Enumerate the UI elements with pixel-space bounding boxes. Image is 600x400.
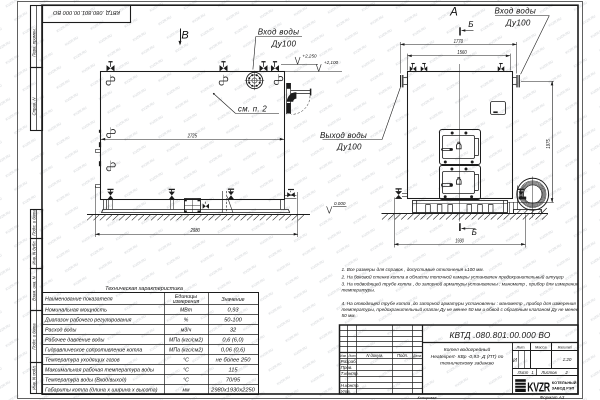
svg-text:МПа (кгс/см2): МПа (кгс/см2) <box>169 347 203 353</box>
svg-text:Диапазон рабочего регулировани: Диапазон рабочего регулирования <box>44 317 132 323</box>
svg-text:Техническая характеристика: Техническая характеристика <box>105 286 183 292</box>
svg-text:KVZR: KVZR <box>527 379 550 394</box>
svg-text:0,6 (6,0): 0,6 (6,0) <box>222 338 243 344</box>
svg-text:Расход воды: Расход воды <box>45 327 76 333</box>
svg-text:техническому заданию: техническому заданию <box>440 360 494 366</box>
svg-text:Выход воды: Выход воды <box>320 131 367 140</box>
svg-text:Подп.: Подп. <box>397 353 408 358</box>
svg-text:Heatexpert- КВр -0,93- Д (ПТ): Heatexpert- КВр -0,93- Д (ПТ) по <box>431 354 504 360</box>
svg-text:%: % <box>184 317 189 323</box>
svg-text:Значение: Значение <box>221 297 244 303</box>
svg-text:Подп. и дата: Подп. и дата <box>31 209 36 236</box>
svg-text:Подп. и дата: Подп. и дата <box>31 323 36 350</box>
svg-text:50-100: 50-100 <box>224 318 243 324</box>
svg-text:+2,250: +2,250 <box>302 54 317 59</box>
svg-text:0,06 (0,6): 0,06 (0,6) <box>221 348 245 354</box>
svg-text:Ду100: Ду100 <box>336 142 362 151</box>
svg-text:70/95: 70/95 <box>226 378 241 384</box>
svg-text:2980х1930х2250: 2980х1930х2250 <box>210 388 255 394</box>
svg-text:температуры, предохранительный: температуры, предохранительный клапан Ду… <box>342 306 579 312</box>
svg-text:Вход воды: Вход воды <box>495 6 537 15</box>
svg-text:N докум.: N докум. <box>366 353 383 358</box>
svg-text:КОТЕЛЬНЫЙ: КОТЕЛЬНЫЙ <box>552 381 577 385</box>
svg-text:Дата: Дата <box>413 353 422 358</box>
svg-text:КВТД .080.801.00.000 ВО: КВТД .080.801.00.000 ВО <box>450 330 551 340</box>
svg-text:°С: °С <box>183 377 189 383</box>
svg-text:Перв. примен.: Перв. примен. <box>31 28 36 57</box>
svg-text:ЗАВОД РЭП: ЗАВОД РЭП <box>552 387 575 391</box>
svg-text:0.000: 0.000 <box>334 201 346 206</box>
svg-text:И: И <box>513 358 517 364</box>
svg-text:Ду100: Ду100 <box>505 18 531 27</box>
svg-text:Вход воды: Вход воды <box>258 28 300 37</box>
svg-text:1. Все размеры для справок ,: 1. Все размеры для справок , допустимые … <box>342 267 484 272</box>
svg-text:Инв. N дубл.: Инв. N дубл. <box>31 240 36 264</box>
svg-text:Максимальная рабочая температу: Максимальная рабочая температура воды <box>45 367 154 373</box>
svg-text:МПа (кгс/см2): МПа (кгс/см2) <box>169 337 203 343</box>
svg-text:Б: Б <box>472 228 477 237</box>
svg-text:м3/ч: м3/ч <box>181 327 192 333</box>
svg-text:измерения: измерения <box>173 299 200 305</box>
svg-text:Лист: Лист <box>517 370 529 375</box>
svg-text:Формат А3: Формат А3 <box>540 395 565 400</box>
svg-text:Утв.: Утв. <box>341 389 351 394</box>
svg-text:1560: 1560 <box>457 50 466 56</box>
svg-text:Ду100: Ду100 <box>271 39 297 48</box>
svg-text:Инв. N подл.: Инв. N подл. <box>31 365 36 389</box>
svg-text:Номинальная мощность: Номинальная мощность <box>45 307 107 313</box>
svg-text:КВТД .080.801.00.000 ВО: КВТД .080.801.00.000 ВО <box>53 9 120 15</box>
svg-text:Справ. N: Справ. N <box>31 97 36 116</box>
svg-text:Температура уходящих газов: Температура уходящих газов <box>45 357 120 363</box>
svg-text:2725: 2725 <box>187 133 198 139</box>
svg-text:Копировал: Копировал <box>418 396 438 400</box>
svg-text:МВт: МВт <box>180 307 193 313</box>
svg-text:1:20: 1:20 <box>563 357 572 362</box>
svg-text:2. На боковой стенке котла в: 2. На боковой стенке котла в области топ… <box>341 273 564 279</box>
svg-text:Листов: Листов <box>540 370 557 375</box>
svg-text:Разраб.: Разраб. <box>341 359 357 364</box>
svg-text:Масштаб: Масштаб <box>558 345 573 350</box>
svg-text:Взам. инв. N: Взам. инв. N <box>31 275 36 300</box>
svg-text:Пров.: Пров. <box>341 365 353 370</box>
svg-text:Гидравлическое сопротивление к: Гидравлическое сопротивление котла <box>45 347 142 353</box>
svg-text:32: 32 <box>230 328 237 334</box>
svg-text:115: 115 <box>228 368 238 374</box>
svg-text:мм: мм <box>182 387 190 393</box>
svg-text:1: 1 <box>531 370 533 375</box>
svg-text:Т.контр.: Т.контр. <box>341 371 359 376</box>
svg-text:Котел водогрейный: Котел водогрейный <box>444 346 491 353</box>
svg-text:1770: 1770 <box>454 39 463 45</box>
svg-text:°С: °С <box>183 367 189 373</box>
svg-text:+2,100: +2,100 <box>324 60 339 65</box>
svg-text:0,93: 0,93 <box>227 308 239 314</box>
svg-text:Масса: Масса <box>535 345 547 350</box>
svg-text:1930: 1930 <box>455 239 464 245</box>
svg-text:Наименование показателя: Наименование показателя <box>45 296 113 302</box>
svg-text:2980: 2980 <box>190 228 200 234</box>
svg-text:Лист: Лист <box>348 353 357 358</box>
svg-text:°С: °С <box>183 357 189 363</box>
svg-text:3. На подводящей трубе котла: 3. На подводящей трубе котла , до запорн… <box>342 280 579 286</box>
svg-text:4. На отводящей трубе котла ,: 4. На отводящей трубе котла ,до запорной… <box>342 300 577 306</box>
svg-text:Изм.: Изм. <box>340 353 347 358</box>
svg-text:1975: 1975 <box>546 139 552 148</box>
svg-text:Лит.: Лит. <box>515 345 525 350</box>
svg-text:Температура воды (Вход/выход): Температура воды (Вход/выход) <box>45 377 127 383</box>
svg-text:не более 250: не более 250 <box>216 358 252 364</box>
svg-text:Б: Б <box>468 20 473 29</box>
svg-text:50 мм.: 50 мм. <box>342 313 356 318</box>
svg-text:см. п. 2: см. п. 2 <box>238 105 267 114</box>
svg-text:Н.контр.: Н.контр. <box>341 383 360 388</box>
svg-text:температуры.: температуры. <box>342 288 376 293</box>
svg-text:В: В <box>181 30 188 42</box>
svg-text:А: А <box>449 6 458 18</box>
svg-text:Рабочее давление воды: Рабочее давление воды <box>45 337 104 343</box>
svg-text:Габариты котла (длина х ширина: Габариты котла (длина х ширина х высота) <box>45 387 158 393</box>
